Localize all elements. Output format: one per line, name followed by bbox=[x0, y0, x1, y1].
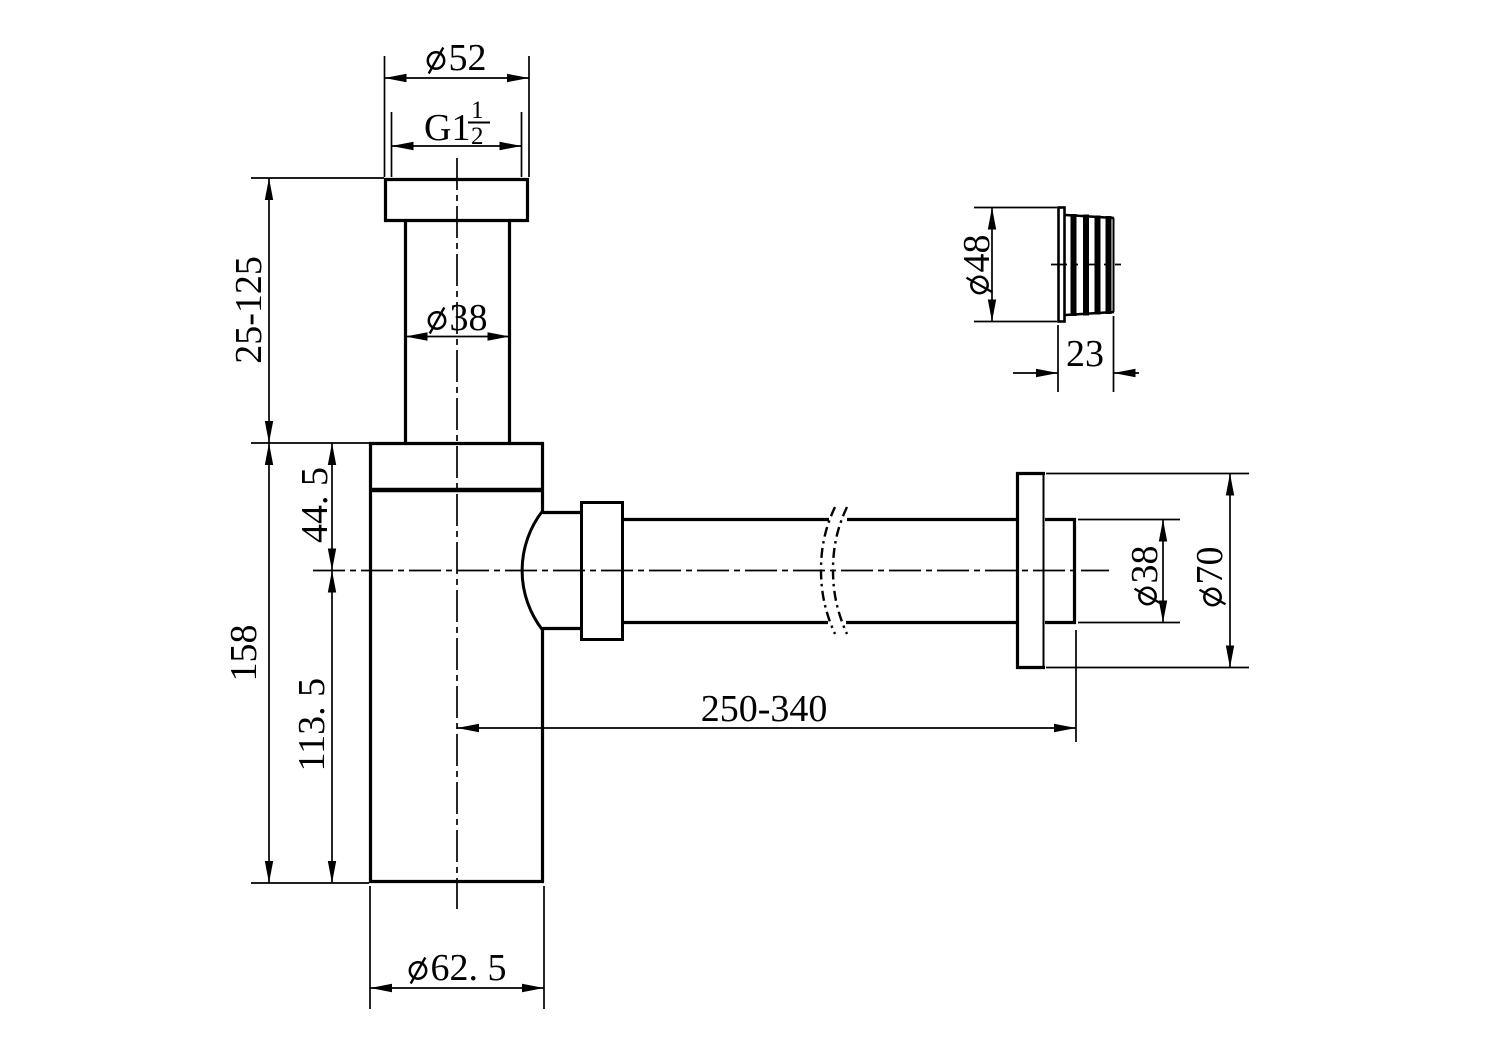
svg-text:G1: G1 bbox=[424, 107, 470, 149]
svg-text:2: 2 bbox=[471, 123, 484, 150]
svg-text:62. 5: 62. 5 bbox=[431, 947, 507, 989]
svg-text:38: 38 bbox=[450, 297, 488, 339]
svg-text:70: 70 bbox=[1189, 547, 1231, 585]
svg-text:48: 48 bbox=[956, 235, 998, 273]
svg-text:113. 5: 113. 5 bbox=[291, 678, 333, 772]
svg-text:250-340: 250-340 bbox=[701, 688, 828, 730]
svg-text:38: 38 bbox=[1124, 546, 1166, 584]
svg-text:23: 23 bbox=[1066, 333, 1104, 375]
svg-text:158: 158 bbox=[223, 625, 265, 682]
svg-text:52: 52 bbox=[449, 37, 487, 79]
svg-text:44. 5: 44. 5 bbox=[294, 467, 336, 543]
svg-text:1: 1 bbox=[471, 97, 484, 124]
svg-text:25-125: 25-125 bbox=[228, 256, 270, 364]
